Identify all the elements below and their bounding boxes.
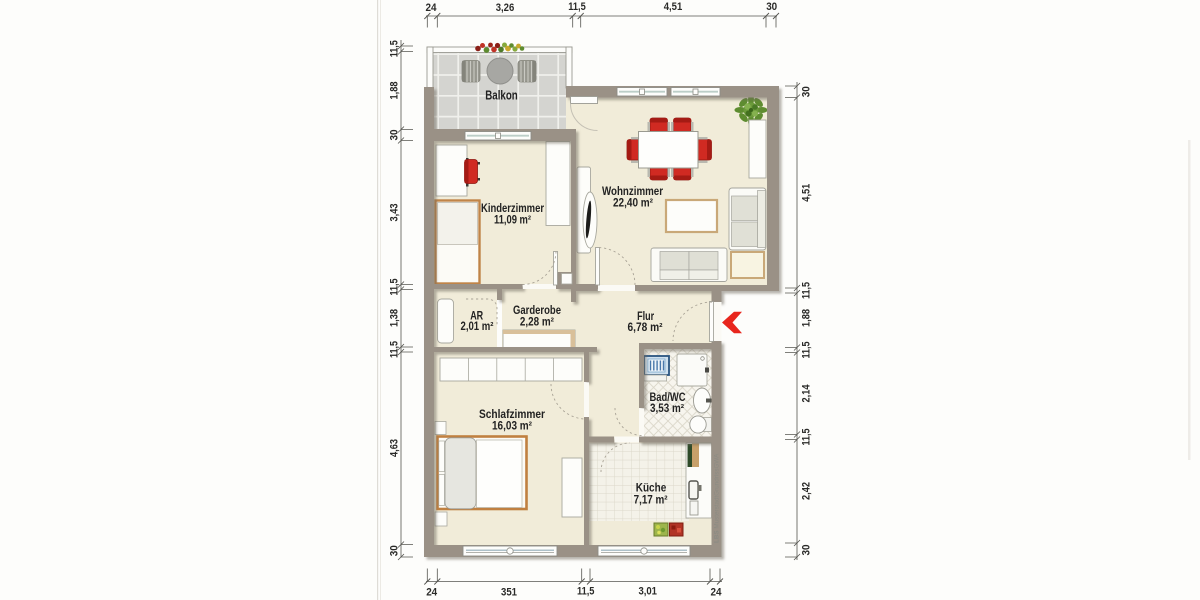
svg-text:11,5: 11,5 [801, 282, 813, 299]
svg-text:3,43: 3,43 [389, 204, 401, 222]
svg-text:24: 24 [426, 587, 438, 599]
svg-text:30: 30 [801, 86, 813, 97]
svg-text:4,63: 4,63 [389, 439, 401, 457]
svg-text:11,5: 11,5 [389, 341, 401, 358]
svg-text:11,5: 11,5 [568, 1, 586, 13]
svg-text:24: 24 [426, 2, 438, 14]
svg-text:Garderobe: Garderobe [513, 305, 561, 317]
svg-text:11,5: 11,5 [389, 279, 401, 296]
svg-text:3,26: 3,26 [496, 2, 515, 14]
svg-text:3,01: 3,01 [638, 586, 657, 598]
svg-text:2,14: 2,14 [801, 384, 813, 403]
svg-text:30: 30 [389, 130, 401, 141]
svg-text:11,09 m²: 11,09 m² [494, 215, 531, 227]
svg-text:16,03 m²: 16,03 m² [492, 421, 532, 433]
svg-text:LBS MusterstadtGrundrissGWA: LBS MusterstadtGrundrissGWA [714, 453, 721, 543]
svg-text:4,51: 4,51 [801, 184, 813, 202]
svg-text:7,17 m²: 7,17 m² [634, 495, 668, 507]
svg-text:1,88: 1,88 [389, 82, 401, 100]
svg-text:11,5: 11,5 [389, 40, 401, 57]
svg-text:1,38: 1,38 [389, 309, 401, 327]
svg-text:30: 30 [766, 1, 777, 13]
svg-text:2,42: 2,42 [801, 482, 813, 500]
svg-text:Küche: Küche [636, 483, 667, 495]
svg-text:11,5: 11,5 [577, 586, 595, 598]
svg-text:Kinderzimmer: Kinderzimmer [481, 203, 544, 215]
svg-text:351: 351 [501, 587, 517, 599]
svg-text:Balkon: Balkon [485, 89, 518, 103]
svg-text:11,5: 11,5 [801, 429, 813, 446]
svg-text:Wohnzimmer: Wohnzimmer [602, 186, 663, 198]
svg-text:3,53 m²: 3,53 m² [650, 403, 684, 415]
svg-text:24: 24 [711, 587, 723, 599]
svg-text:11,5: 11,5 [801, 342, 813, 359]
svg-text:30: 30 [389, 545, 401, 556]
svg-text:22,40 m²: 22,40 m² [613, 197, 653, 209]
svg-text:6,78 m²: 6,78 m² [628, 322, 663, 334]
svg-text:4,51: 4,51 [664, 1, 683, 13]
svg-text:Schlafzimmer: Schlafzimmer [479, 409, 545, 421]
svg-text:1,88: 1,88 [801, 309, 813, 327]
svg-text:2,28 m²: 2,28 m² [520, 317, 554, 329]
svg-text:30: 30 [801, 545, 813, 556]
svg-text:2,01 m²: 2,01 m² [461, 321, 494, 333]
